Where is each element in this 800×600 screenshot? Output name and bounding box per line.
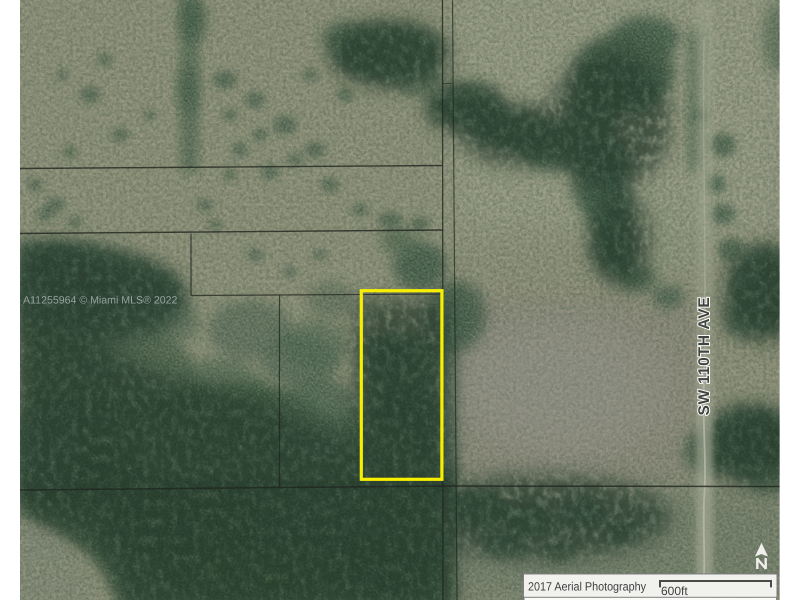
svg-text:2017 Aerial Photography: 2017 Aerial Photography: [528, 580, 646, 594]
svg-text:SW 110TH AVE: SW 110TH AVE: [696, 297, 713, 416]
svg-text:600ft: 600ft: [661, 584, 688, 598]
svg-text:A11255964 © Miami MLS® 2022: A11255964 © Miami MLS® 2022: [23, 295, 178, 307]
